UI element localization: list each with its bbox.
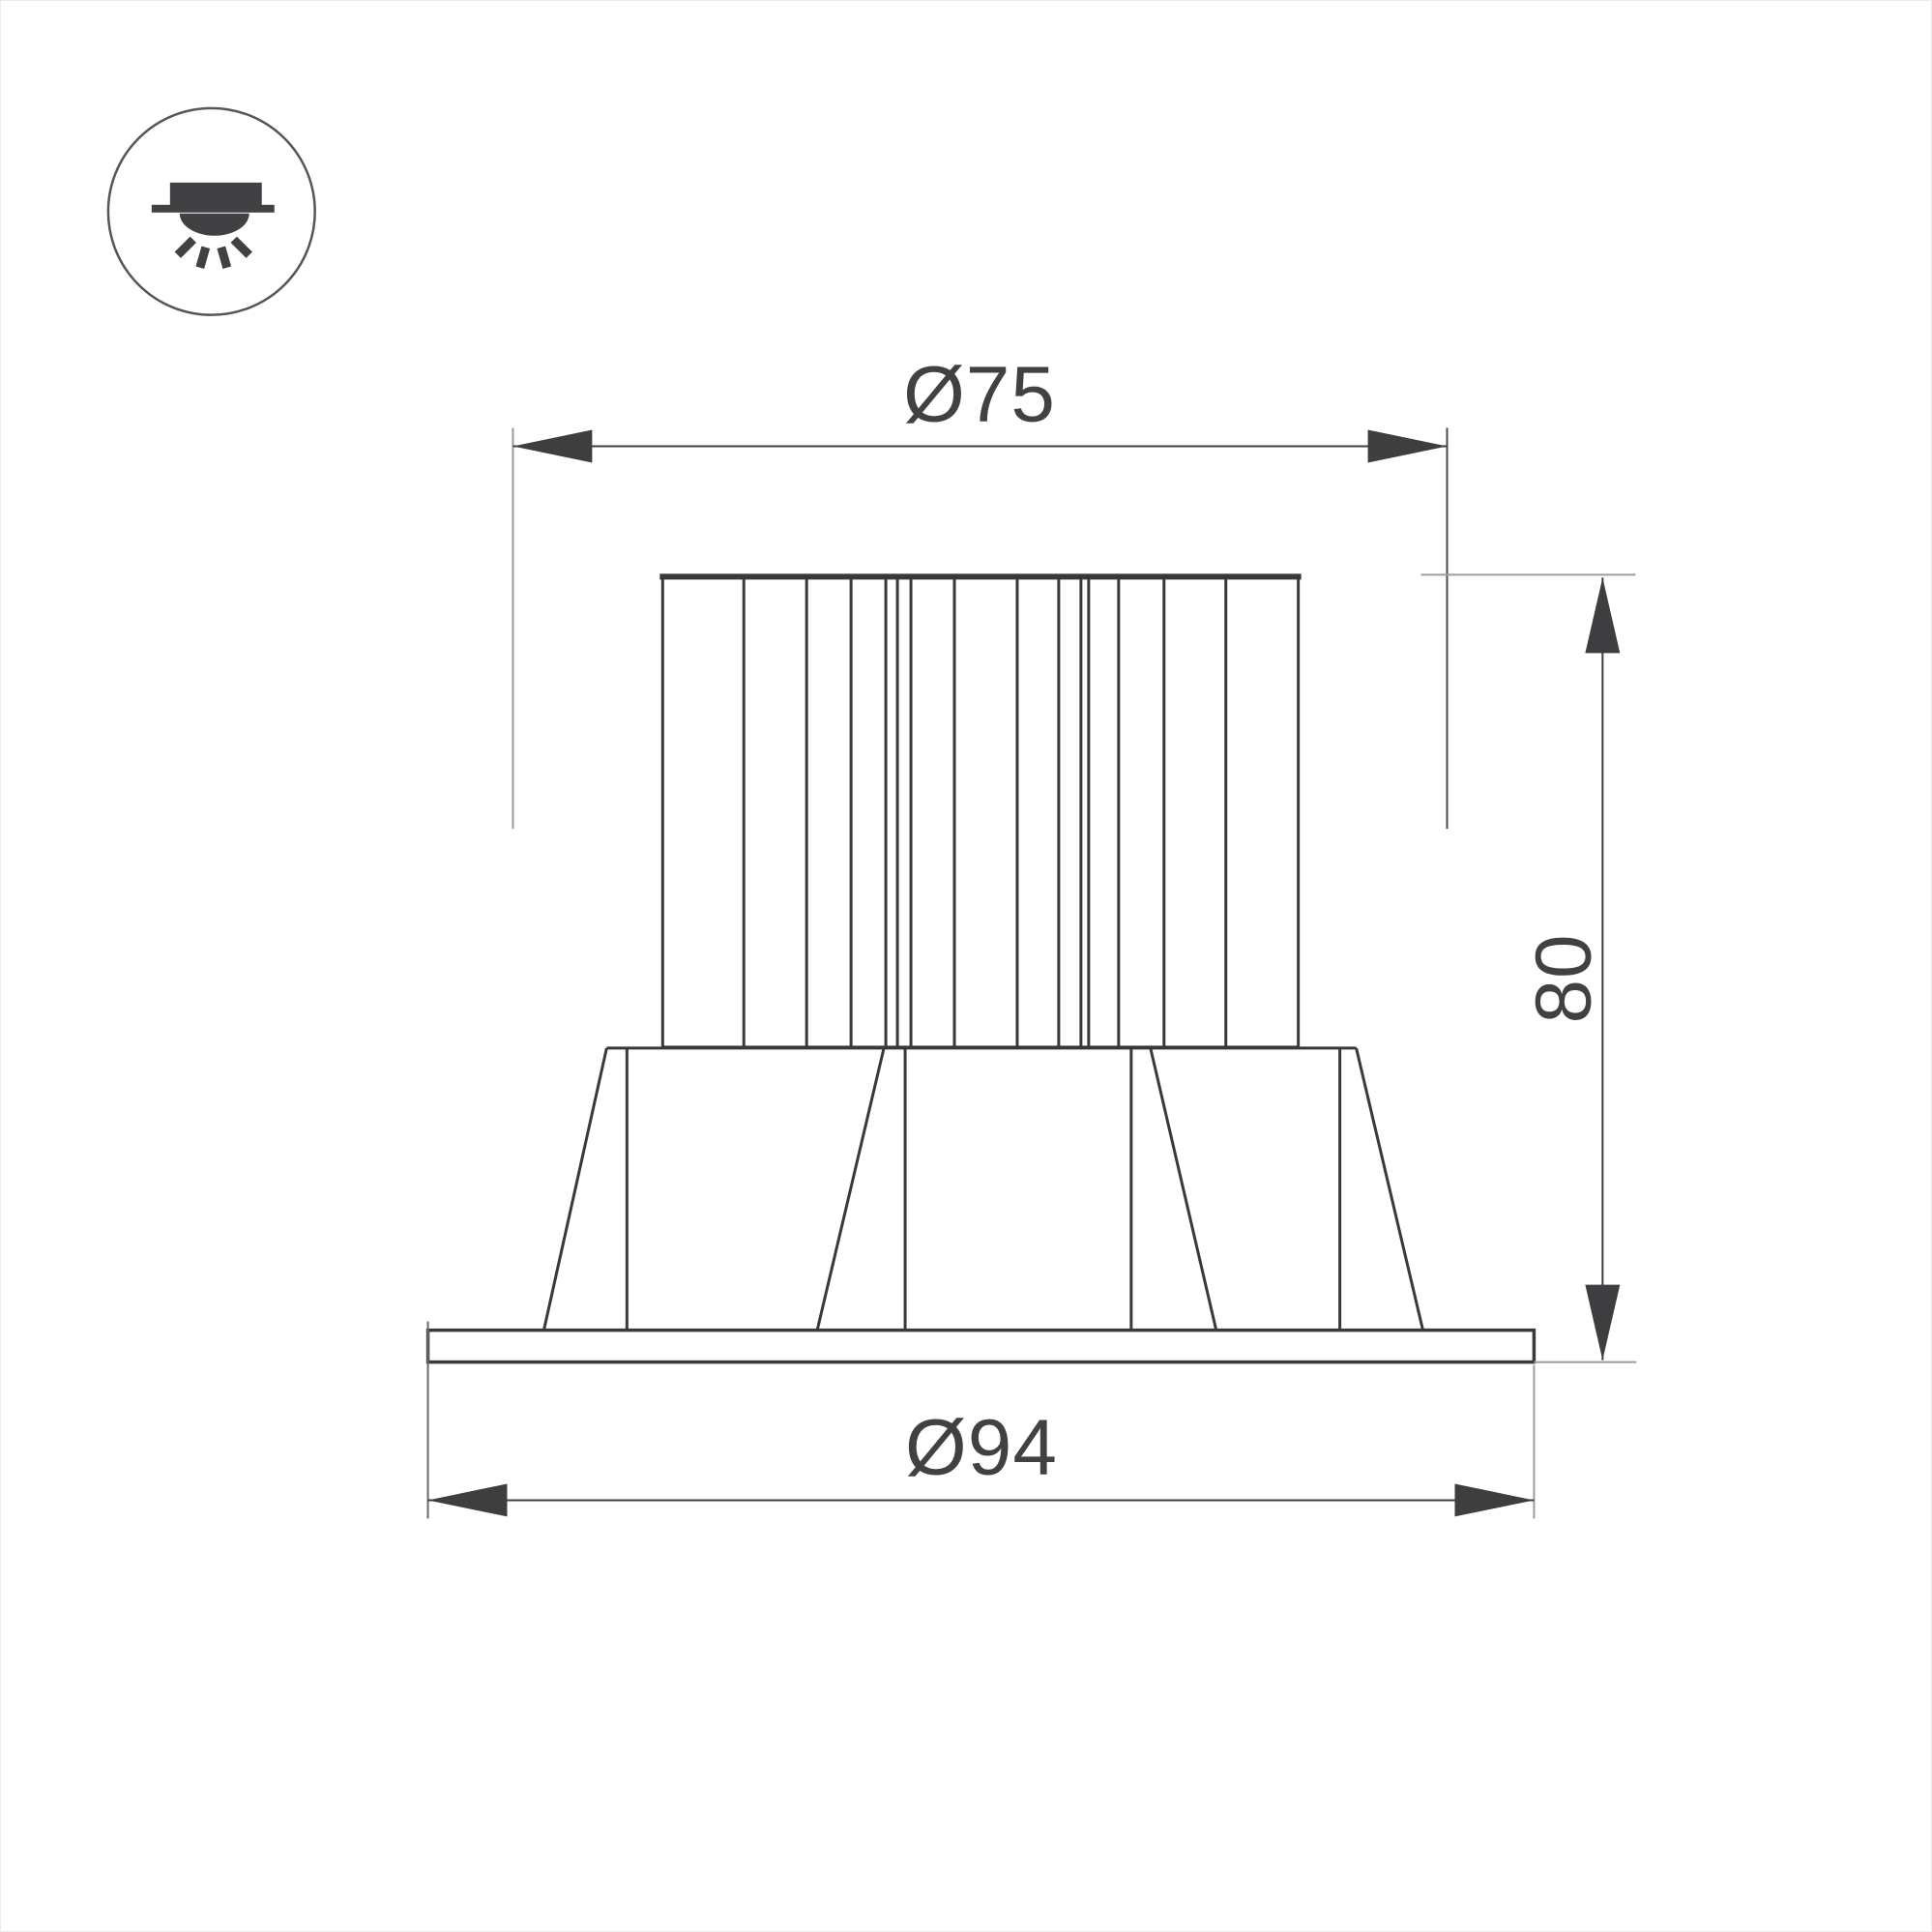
arrowhead-up <box>1585 577 1620 653</box>
dim-height-label: 80 <box>1519 933 1607 1023</box>
dim-height: 80 <box>1421 574 1637 1361</box>
dim-top-diameter-label: Ø75 <box>903 351 1056 439</box>
icon-light-rays <box>178 240 249 268</box>
icon-housing-box <box>170 183 262 207</box>
body-inner-slant-left <box>817 1048 884 1331</box>
body-inner-slant-right <box>1151 1048 1216 1331</box>
heatsink-outline <box>662 576 1298 1047</box>
dim-bottom-diameter-label: Ø94 <box>905 1403 1058 1491</box>
arrowhead-left <box>512 430 592 463</box>
arrowhead-right <box>1368 430 1448 463</box>
drawing-canvas: Ø75 80 Ø94 <box>0 0 1932 1932</box>
arrowhead-down <box>1585 1285 1620 1361</box>
icon-ceiling-bar <box>152 205 275 213</box>
heatsink <box>659 576 1301 1047</box>
icon-lamp-dome <box>180 214 249 236</box>
recessed-downlight-icon <box>108 108 315 315</box>
body-left-slant <box>543 1048 606 1331</box>
arrowhead-left <box>428 1483 508 1516</box>
technical-drawing: Ø75 80 Ø94 <box>1 1 1931 1931</box>
fixture-body <box>543 1048 1422 1331</box>
body-right-slant <box>1357 1048 1423 1331</box>
trim-flange <box>428 1331 1535 1362</box>
arrowhead-right <box>1454 1483 1534 1516</box>
